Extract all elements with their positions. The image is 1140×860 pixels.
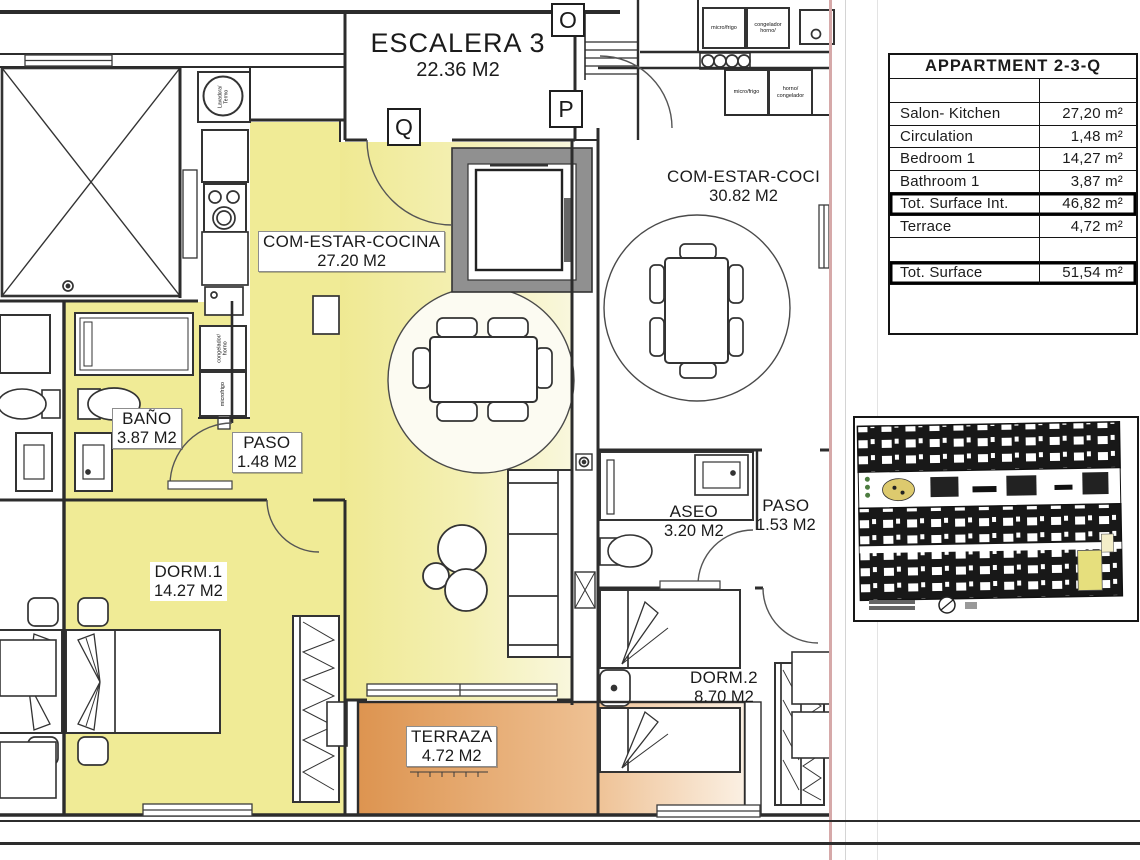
floor-plan-page: ESCALERA 3 22.36 M2 O P Q COM-ESTAR-COCI… bbox=[0, 0, 1140, 860]
block-letter-p: P bbox=[549, 90, 583, 128]
escalera-label: ESCALERA 3 22.36 M2 bbox=[368, 28, 548, 82]
appliance-label-horno-congelador: horno/ congelador bbox=[769, 72, 812, 113]
row-value bbox=[1040, 238, 1136, 261]
room-label-dorm2: DORM.2 8.70 M2 bbox=[686, 668, 762, 707]
block-letter-o: O bbox=[551, 3, 585, 37]
appliance-label-congelador-horno-vertical: congelador/ horno bbox=[200, 326, 246, 370]
appliance-label-microfrigo: microfrigo bbox=[200, 372, 246, 416]
row-value: 1,48 m² bbox=[1040, 126, 1136, 148]
row-label: Tot. Surface Int. bbox=[890, 193, 1040, 215]
table-empty-extension bbox=[890, 285, 1136, 334]
appliance-label-lavadora-termo: Lavadora/ Termo bbox=[202, 76, 246, 118]
ground-line-lower bbox=[0, 842, 1140, 845]
row-value: 46,82 m² bbox=[1040, 193, 1136, 215]
room-label-salon2: COM-ESTAR-COCI 30.82 M2 bbox=[663, 167, 824, 206]
table-row: Tot. Surface 51,54 m² bbox=[890, 262, 1136, 285]
room-label-aseo: ASEO 3.20 M2 bbox=[660, 502, 728, 541]
table-row: Circulation 1,48 m² bbox=[890, 126, 1136, 149]
corridor-symbols bbox=[575, 454, 595, 608]
table-row bbox=[890, 238, 1136, 262]
table-row bbox=[890, 79, 1136, 103]
key-plan-drawing bbox=[855, 418, 1133, 616]
dorm1-wardrobe bbox=[293, 616, 347, 802]
row-label: Bedroom 1 bbox=[890, 148, 1040, 170]
room-label-terraza: TERRAZA 4.72 M2 bbox=[406, 726, 497, 767]
dining-set-right bbox=[604, 215, 790, 401]
plot-boundary-line bbox=[829, 0, 832, 860]
table-row: Salon- Kitchen 27,20 m² bbox=[890, 103, 1136, 126]
row-label bbox=[890, 79, 1040, 102]
table-row: Bedroom 1 14,27 m² bbox=[890, 148, 1136, 171]
room-label-dorm1: DORM.1 14.27 M2 bbox=[150, 562, 227, 601]
appliance-label-congelador-horno: congelador horno/ bbox=[747, 10, 789, 46]
shaft-box bbox=[2, 68, 180, 296]
key-plan-thumbnail bbox=[853, 416, 1139, 622]
row-value: 4,72 m² bbox=[1040, 216, 1136, 238]
escalera-name: ESCALERA 3 bbox=[368, 28, 548, 59]
row-value: 14,27 m² bbox=[1040, 148, 1136, 170]
room-label-paso2: PASO 1.53 M2 bbox=[752, 496, 820, 535]
row-label: Terrace bbox=[890, 216, 1040, 238]
row-label: Circulation bbox=[890, 126, 1040, 148]
table-row: Terrace 4,72 m² bbox=[890, 216, 1136, 239]
row-value: 27,20 m² bbox=[1040, 103, 1136, 125]
row-label: Salon- Kitchen bbox=[890, 103, 1040, 125]
row-value bbox=[1040, 79, 1136, 102]
area-summary-table: APPARTMENT 2-3-Q Salon- Kitchen 27,20 m²… bbox=[888, 53, 1138, 335]
row-value: 51,54 m² bbox=[1040, 262, 1136, 284]
room-label-bano: BAÑO 3.87 M2 bbox=[112, 408, 182, 449]
dining-set-left bbox=[388, 287, 574, 473]
table-rows: Salon- Kitchen 27,20 m² Circulation 1,48… bbox=[890, 79, 1136, 285]
room-label-salon: COM-ESTAR-COCINA 27.20 M2 bbox=[258, 231, 445, 272]
row-label: Bathroom 1 bbox=[890, 171, 1040, 193]
fold-line-1 bbox=[845, 0, 846, 860]
table-row: Tot. Surface Int. 46,82 m² bbox=[890, 193, 1136, 216]
row-label: Tot. Surface bbox=[890, 262, 1040, 284]
row-label bbox=[890, 238, 1040, 261]
block-letter-q: Q bbox=[387, 108, 421, 146]
escalera-area: 22.36 M2 bbox=[368, 59, 548, 82]
neighbour-fixtures bbox=[0, 315, 60, 491]
row-value: 3,87 m² bbox=[1040, 171, 1136, 193]
sofa bbox=[508, 470, 572, 657]
table-title: APPARTMENT 2-3-Q bbox=[890, 55, 1136, 79]
table-row: Bathroom 1 3,87 m² bbox=[890, 171, 1136, 194]
room-label-paso1: PASO 1.48 M2 bbox=[232, 432, 302, 473]
appliance-label-micro-frigo-2: micro/frigo bbox=[725, 72, 768, 113]
ground-line-upper bbox=[0, 820, 1140, 822]
appliance-label-micro-frigo-1: micro/frigo bbox=[703, 10, 745, 46]
